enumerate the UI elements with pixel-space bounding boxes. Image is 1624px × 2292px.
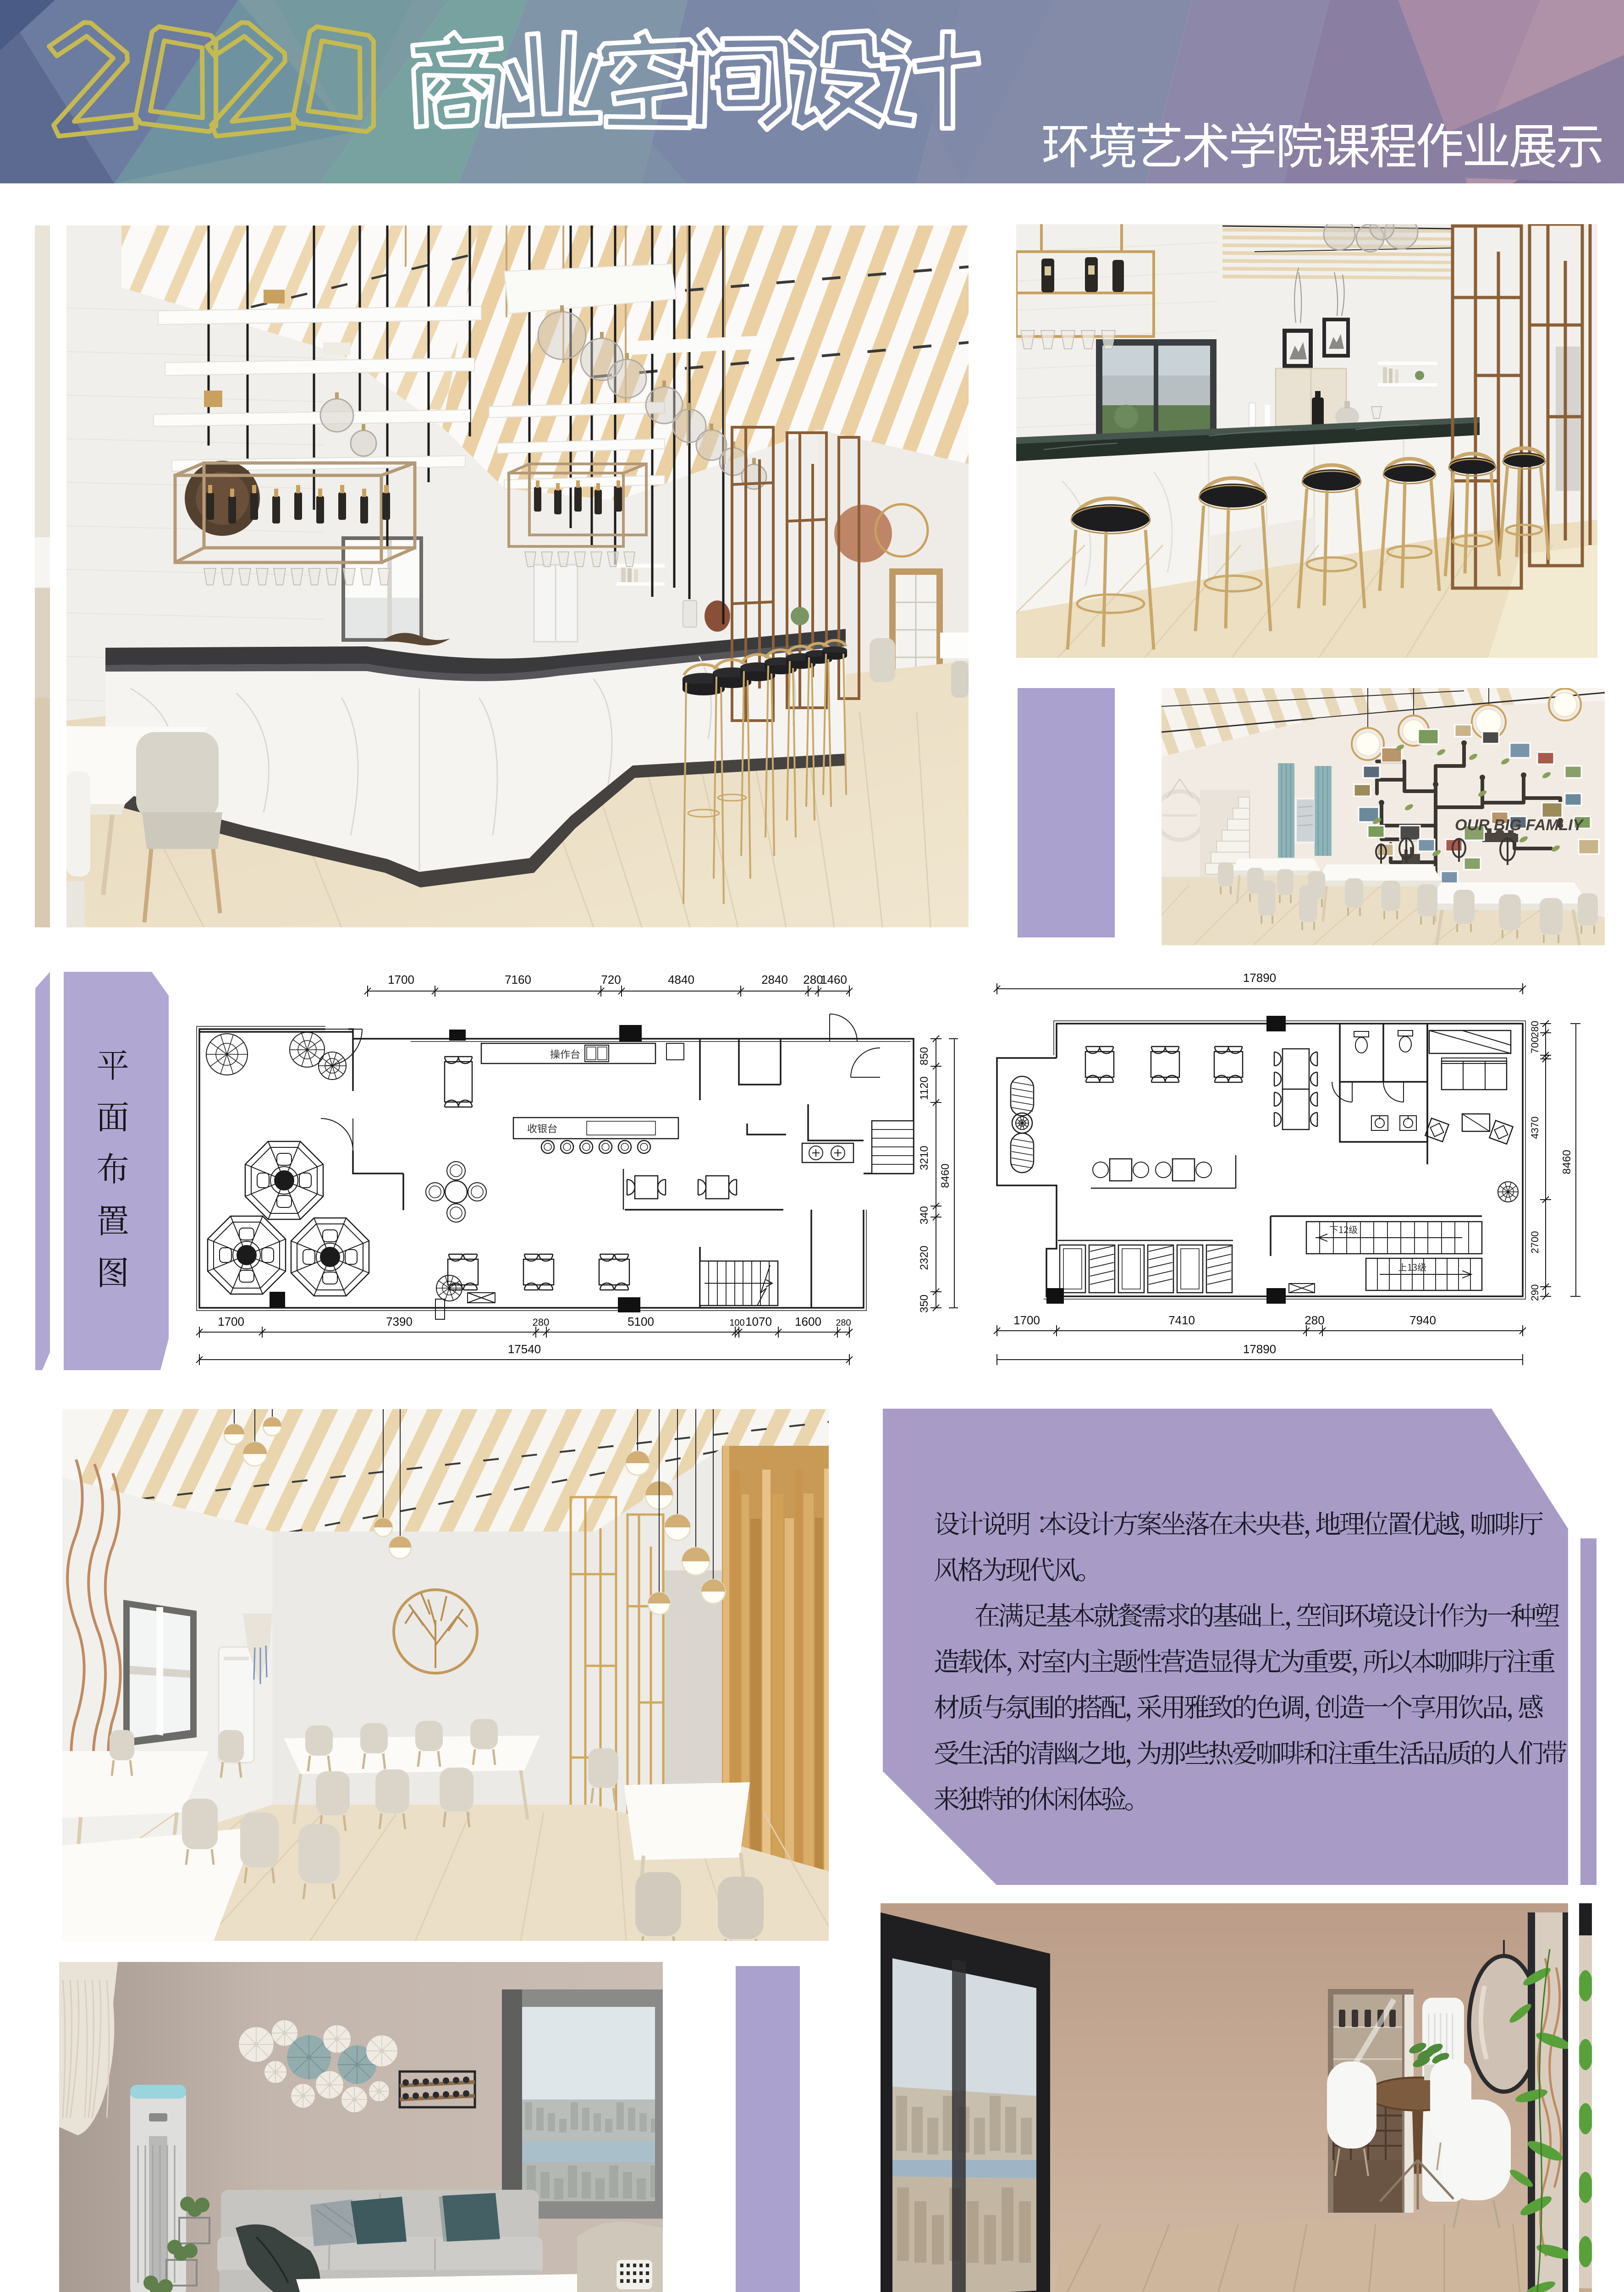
svg-text:5100: 5100 [628, 1315, 654, 1328]
svg-text:2320: 2320 [918, 1245, 930, 1270]
svg-text:100: 100 [729, 1318, 744, 1328]
svg-text:17540: 17540 [508, 1342, 541, 1356]
svg-text:2840: 2840 [761, 973, 788, 986]
svg-text:1600: 1600 [795, 1315, 821, 1328]
svg-text:2700: 2700 [1529, 1231, 1541, 1254]
svg-text:280: 280 [1529, 1021, 1541, 1038]
svg-text:1700: 1700 [1013, 1313, 1040, 1327]
svg-text:1070: 1070 [745, 1315, 772, 1328]
svg-text:280: 280 [1305, 1313, 1324, 1327]
svg-text:7410: 7410 [1168, 1313, 1195, 1327]
svg-text:17890: 17890 [1243, 972, 1276, 985]
svg-text:280: 280 [836, 1318, 851, 1328]
svg-text:17890: 17890 [1243, 1342, 1276, 1356]
svg-text:3210: 3210 [918, 1146, 930, 1170]
svg-text:700: 700 [1529, 1037, 1541, 1054]
svg-text:1700: 1700 [218, 1315, 244, 1328]
svg-text:280: 280 [533, 1317, 550, 1328]
svg-text:OUR BIG FAMLIY: OUR BIG FAMLIY [1455, 816, 1585, 834]
svg-text:720: 720 [601, 973, 621, 986]
svg-text:4370: 4370 [1529, 1117, 1541, 1139]
svg-text:1120: 1120 [918, 1076, 930, 1100]
svg-text:290: 290 [1529, 1284, 1541, 1301]
svg-text:1700: 1700 [388, 973, 414, 986]
svg-text:4840: 4840 [668, 973, 694, 986]
svg-text:8460: 8460 [1561, 1150, 1573, 1174]
svg-text:340: 340 [918, 1206, 930, 1224]
svg-text:350: 350 [918, 1295, 930, 1313]
svg-text:8460: 8460 [939, 1163, 952, 1188]
svg-text:7390: 7390 [386, 1315, 413, 1328]
svg-text:850: 850 [918, 1047, 930, 1065]
svg-text:7160: 7160 [505, 973, 531, 986]
svg-text:1460: 1460 [820, 973, 847, 986]
svg-text:7940: 7940 [1409, 1313, 1436, 1327]
